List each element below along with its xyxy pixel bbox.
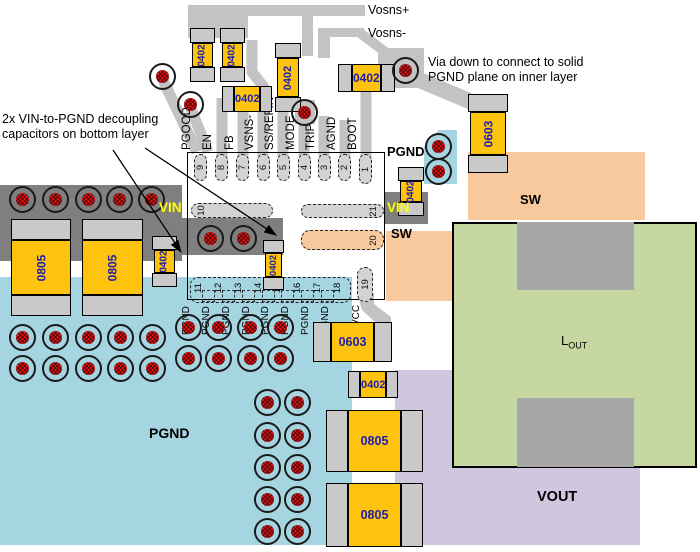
via (205, 345, 232, 372)
lout-pad-bottom (517, 398, 634, 467)
via (42, 355, 69, 382)
cap-0603-topright: 0603 (468, 94, 508, 173)
pin-label-en: EN (202, 134, 215, 150)
via (139, 355, 166, 382)
ic-bottom-pad-square (321, 290, 334, 302)
pin-label-boot: BOOT (347, 117, 360, 150)
ic-pin-8: 8 (215, 154, 228, 181)
ic-bottom-pad-square (242, 290, 255, 302)
cap-0805-left-2: 0805 (82, 219, 143, 316)
vout-label: VOUT (537, 489, 577, 505)
vin-left-label: VIN (159, 200, 182, 215)
pcb-layout-diagram: 9 8 7 6 5 4 3 2 1 PGOOD EN FB VSNS- SS/R… (0, 0, 700, 552)
via (254, 422, 281, 449)
cap-0402-bottom: 0402 (348, 371, 398, 398)
ic-bottom-pad-square (222, 290, 235, 302)
via (237, 314, 264, 341)
via (284, 389, 311, 416)
ic-bottom-pad-square (301, 290, 314, 302)
via (425, 133, 452, 160)
cap-0402-top-2: 0402 (220, 28, 245, 82)
sw-plane-label: SW (520, 192, 541, 207)
via (75, 186, 102, 213)
via (230, 225, 257, 252)
via (139, 324, 166, 351)
via (284, 454, 311, 481)
via (267, 345, 294, 372)
pin-label-pgnd-17: PGND (300, 306, 312, 335)
via (254, 454, 281, 481)
via (254, 518, 281, 545)
via (107, 355, 134, 382)
ic-pin-4: 4 (298, 154, 311, 181)
cap-0402-decoupling-1: 0402 (152, 236, 177, 287)
ic-bottom-pad-square (262, 290, 275, 302)
lout-pad-top (517, 222, 634, 290)
cap-0805-out-2: 0805 (326, 483, 423, 547)
ic-pin-7: 7 (236, 154, 249, 181)
ic-pin-19: 19 (357, 267, 373, 302)
via (284, 518, 311, 545)
decoupling-note: 2x VIN-to-PGND decoupling capacitors on … (2, 112, 158, 142)
via (9, 186, 36, 213)
ic-pin-9: 9 (194, 154, 207, 181)
via (9, 355, 36, 382)
via (237, 345, 264, 372)
pin-label-fb: FB (224, 135, 237, 150)
ic-pin-1: 1 (359, 154, 372, 184)
ic-pin-21: 21 (301, 204, 384, 218)
sw-plane-strip (386, 231, 455, 301)
via (197, 225, 224, 252)
cap-0402-top-3: 0402 (222, 86, 269, 112)
lout-label: LOUT (561, 333, 587, 351)
vosns-minus-label: Vosns- (368, 26, 406, 41)
pin-label-trip: TRIP (305, 124, 318, 150)
cap-0402-decoupling-2: 0402 (263, 240, 284, 290)
via (284, 422, 311, 449)
ic-pin-20: 20 (301, 230, 384, 250)
ic-bottom-pad-square (281, 290, 294, 302)
via (75, 355, 102, 382)
pgnd-main-label: PGND (149, 425, 189, 441)
via (75, 324, 102, 351)
via (149, 63, 176, 90)
via (42, 324, 69, 351)
via (177, 91, 204, 118)
via (42, 186, 69, 213)
sw-pin-label: SW (391, 226, 412, 241)
via (267, 314, 294, 341)
ic-pin-5: 5 (277, 154, 290, 181)
via (392, 57, 419, 84)
vosns-plus-label: Vosns+ (368, 3, 409, 18)
ic-pin-10: 10 (191, 203, 273, 218)
ic-pin-6: 6 (257, 154, 270, 181)
cap-0603-vcc: 0603 (313, 322, 392, 362)
via (291, 99, 318, 126)
ic-pin-3: 3 (318, 154, 331, 181)
via (284, 486, 311, 513)
via-note: Via down to connect to solid PGND plane … (428, 55, 583, 85)
via (175, 314, 202, 341)
via (254, 389, 281, 416)
pin-label-vsns: VSNS- (244, 115, 257, 150)
via (106, 186, 133, 213)
cap-0805-left-1: 0805 (11, 219, 71, 316)
via (107, 324, 134, 351)
via (425, 158, 452, 185)
ic-bottom-pad-square (202, 290, 215, 302)
via (254, 486, 281, 513)
via (9, 324, 36, 351)
ic-pin-2: 2 (338, 154, 351, 181)
vin-right-label: VIN (387, 200, 410, 215)
via (175, 345, 202, 372)
pin-label-agnd: AGND (326, 117, 339, 150)
via (205, 314, 232, 341)
pgnd-patch-label: PGND (387, 144, 425, 159)
cap-0805-out-1: 0805 (326, 410, 423, 472)
cap-0402-boot: 0402 (338, 64, 391, 92)
cap-0402-top-1: 0402 (190, 28, 215, 82)
